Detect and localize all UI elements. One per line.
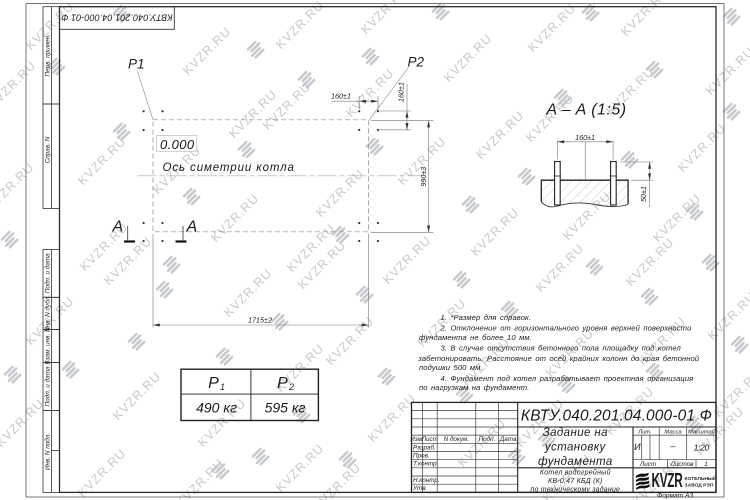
svg-text:Утв.: Утв. xyxy=(412,485,427,492)
svg-text:Подп.: Подп. xyxy=(479,435,496,443)
svg-text:1715±2: 1715±2 xyxy=(248,315,272,324)
svg-text:2: 2 xyxy=(288,382,294,392)
svg-text:Т.контр.: Т.контр. xyxy=(413,461,438,468)
svg-text:Лист: Лист xyxy=(421,436,438,443)
svg-text:КВ-0,47 КБД (К): КВ-0,47 КБД (К) xyxy=(548,478,603,485)
svg-text:по техническому задание: по техническому задание xyxy=(530,485,620,493)
svg-text:Котел водогрейный: Котел водогрейный xyxy=(540,468,611,476)
svg-text:990±3: 990±3 xyxy=(419,167,428,187)
svg-text:P: P xyxy=(208,375,219,392)
svg-text:Пров.: Пров. xyxy=(413,453,430,460)
svg-text:Перв. примен.: Перв. примен. xyxy=(45,34,52,76)
svg-text:Листов: Листов xyxy=(670,461,695,468)
svg-text:установку: установку xyxy=(544,442,607,454)
svg-text:КВТУ.040.201.04.000-01 Ф: КВТУ.040.201.04.000-01 Ф xyxy=(61,13,172,23)
svg-text:50±1: 50±1 xyxy=(639,186,648,202)
svg-text:Подп. и дата: Подп. и дата xyxy=(44,366,52,406)
svg-text:1:20: 1:20 xyxy=(694,443,710,453)
svg-text:фундамента не более 10 мм.: фундамента не более 10 мм. xyxy=(419,333,532,342)
svg-text:подушки 500 мм.: подушки 500 мм. xyxy=(419,363,483,372)
svg-text:Дата: Дата xyxy=(499,436,517,443)
svg-text:Масса: Масса xyxy=(664,429,682,435)
svg-text:P1: P1 xyxy=(128,57,145,72)
svg-text:Формат А3: Формат А3 xyxy=(657,492,693,499)
svg-text:A: A xyxy=(112,219,124,236)
svg-text:Инв. N подл.: Инв. N подл. xyxy=(44,433,52,470)
svg-text:3. В случае отсутствия бетонно: 3. В случае отсутствия бетонного пола пл… xyxy=(441,344,682,353)
svg-text:Разраб.: Разраб. xyxy=(413,443,436,451)
svg-text:–: – xyxy=(669,441,676,451)
svg-text:И: И xyxy=(634,442,641,452)
svg-text:N докум.: N докум. xyxy=(444,435,469,443)
svg-text:Взам. инв. N: Взам. инв. N xyxy=(45,327,52,365)
svg-text:2. Отклонение от горизонтально: 2. Отклонение от горизонтального уровня … xyxy=(440,324,693,333)
svg-text:Н.контр.: Н.контр. xyxy=(413,477,440,484)
svg-text:забетонировать. Расстояние от: забетонировать. Расстояние от осей крайн… xyxy=(417,354,700,363)
svg-text:Лит.: Лит. xyxy=(637,429,652,435)
svg-text:P2: P2 xyxy=(408,55,425,70)
svg-text:Задание на: Задание на xyxy=(543,427,608,439)
svg-text:Инв. N дубл.: Инв. N дубл. xyxy=(44,295,52,332)
svg-text:4. Фундамент под котел разраба: 4. Фундамент под котел разрабатывает про… xyxy=(441,374,694,383)
svg-text:490 кг: 490 кг xyxy=(196,400,237,416)
svg-text:КВТУ.040.201.04.000-01 Ф: КВТУ.040.201.04.000-01 Ф xyxy=(521,408,712,425)
svg-text:Справ. N: Справ. N xyxy=(45,136,52,163)
svg-text:Лист: Лист xyxy=(639,461,656,468)
svg-text:фундамента: фундамента xyxy=(538,456,613,468)
svg-text:1. *Размер для справок.: 1. *Размер для справок. xyxy=(441,313,531,322)
svg-text:160±1: 160±1 xyxy=(396,82,405,102)
svg-text:по нагрузкам на фундамент.: по нагрузкам на фундамент. xyxy=(419,383,529,392)
svg-text:160±1: 160±1 xyxy=(575,133,595,142)
svg-text:Ось симетрии котла: Ось симетрии котла xyxy=(163,162,295,174)
svg-text:595 кг: 595 кг xyxy=(265,400,306,416)
svg-text:P: P xyxy=(277,375,288,392)
svg-text:160±1: 160±1 xyxy=(331,91,351,100)
svg-text:1: 1 xyxy=(704,461,708,468)
svg-text:A: A xyxy=(186,219,198,236)
svg-text:Масштаб: Масштаб xyxy=(688,429,716,435)
svg-text:Подп. и дата: Подп. и дата xyxy=(44,253,52,293)
svg-text:KVZR: KVZR xyxy=(652,470,683,492)
svg-text:1: 1 xyxy=(220,382,225,392)
svg-text:A – A (1:5): A – A (1:5) xyxy=(545,102,626,119)
svg-text:ЗАВОД РЭП: ЗАВОД РЭП xyxy=(685,483,714,489)
svg-text:КОТЕЛЬНЫЙ: КОТЕЛЬНЫЙ xyxy=(685,474,717,482)
svg-text:0.000: 0.000 xyxy=(160,137,195,152)
